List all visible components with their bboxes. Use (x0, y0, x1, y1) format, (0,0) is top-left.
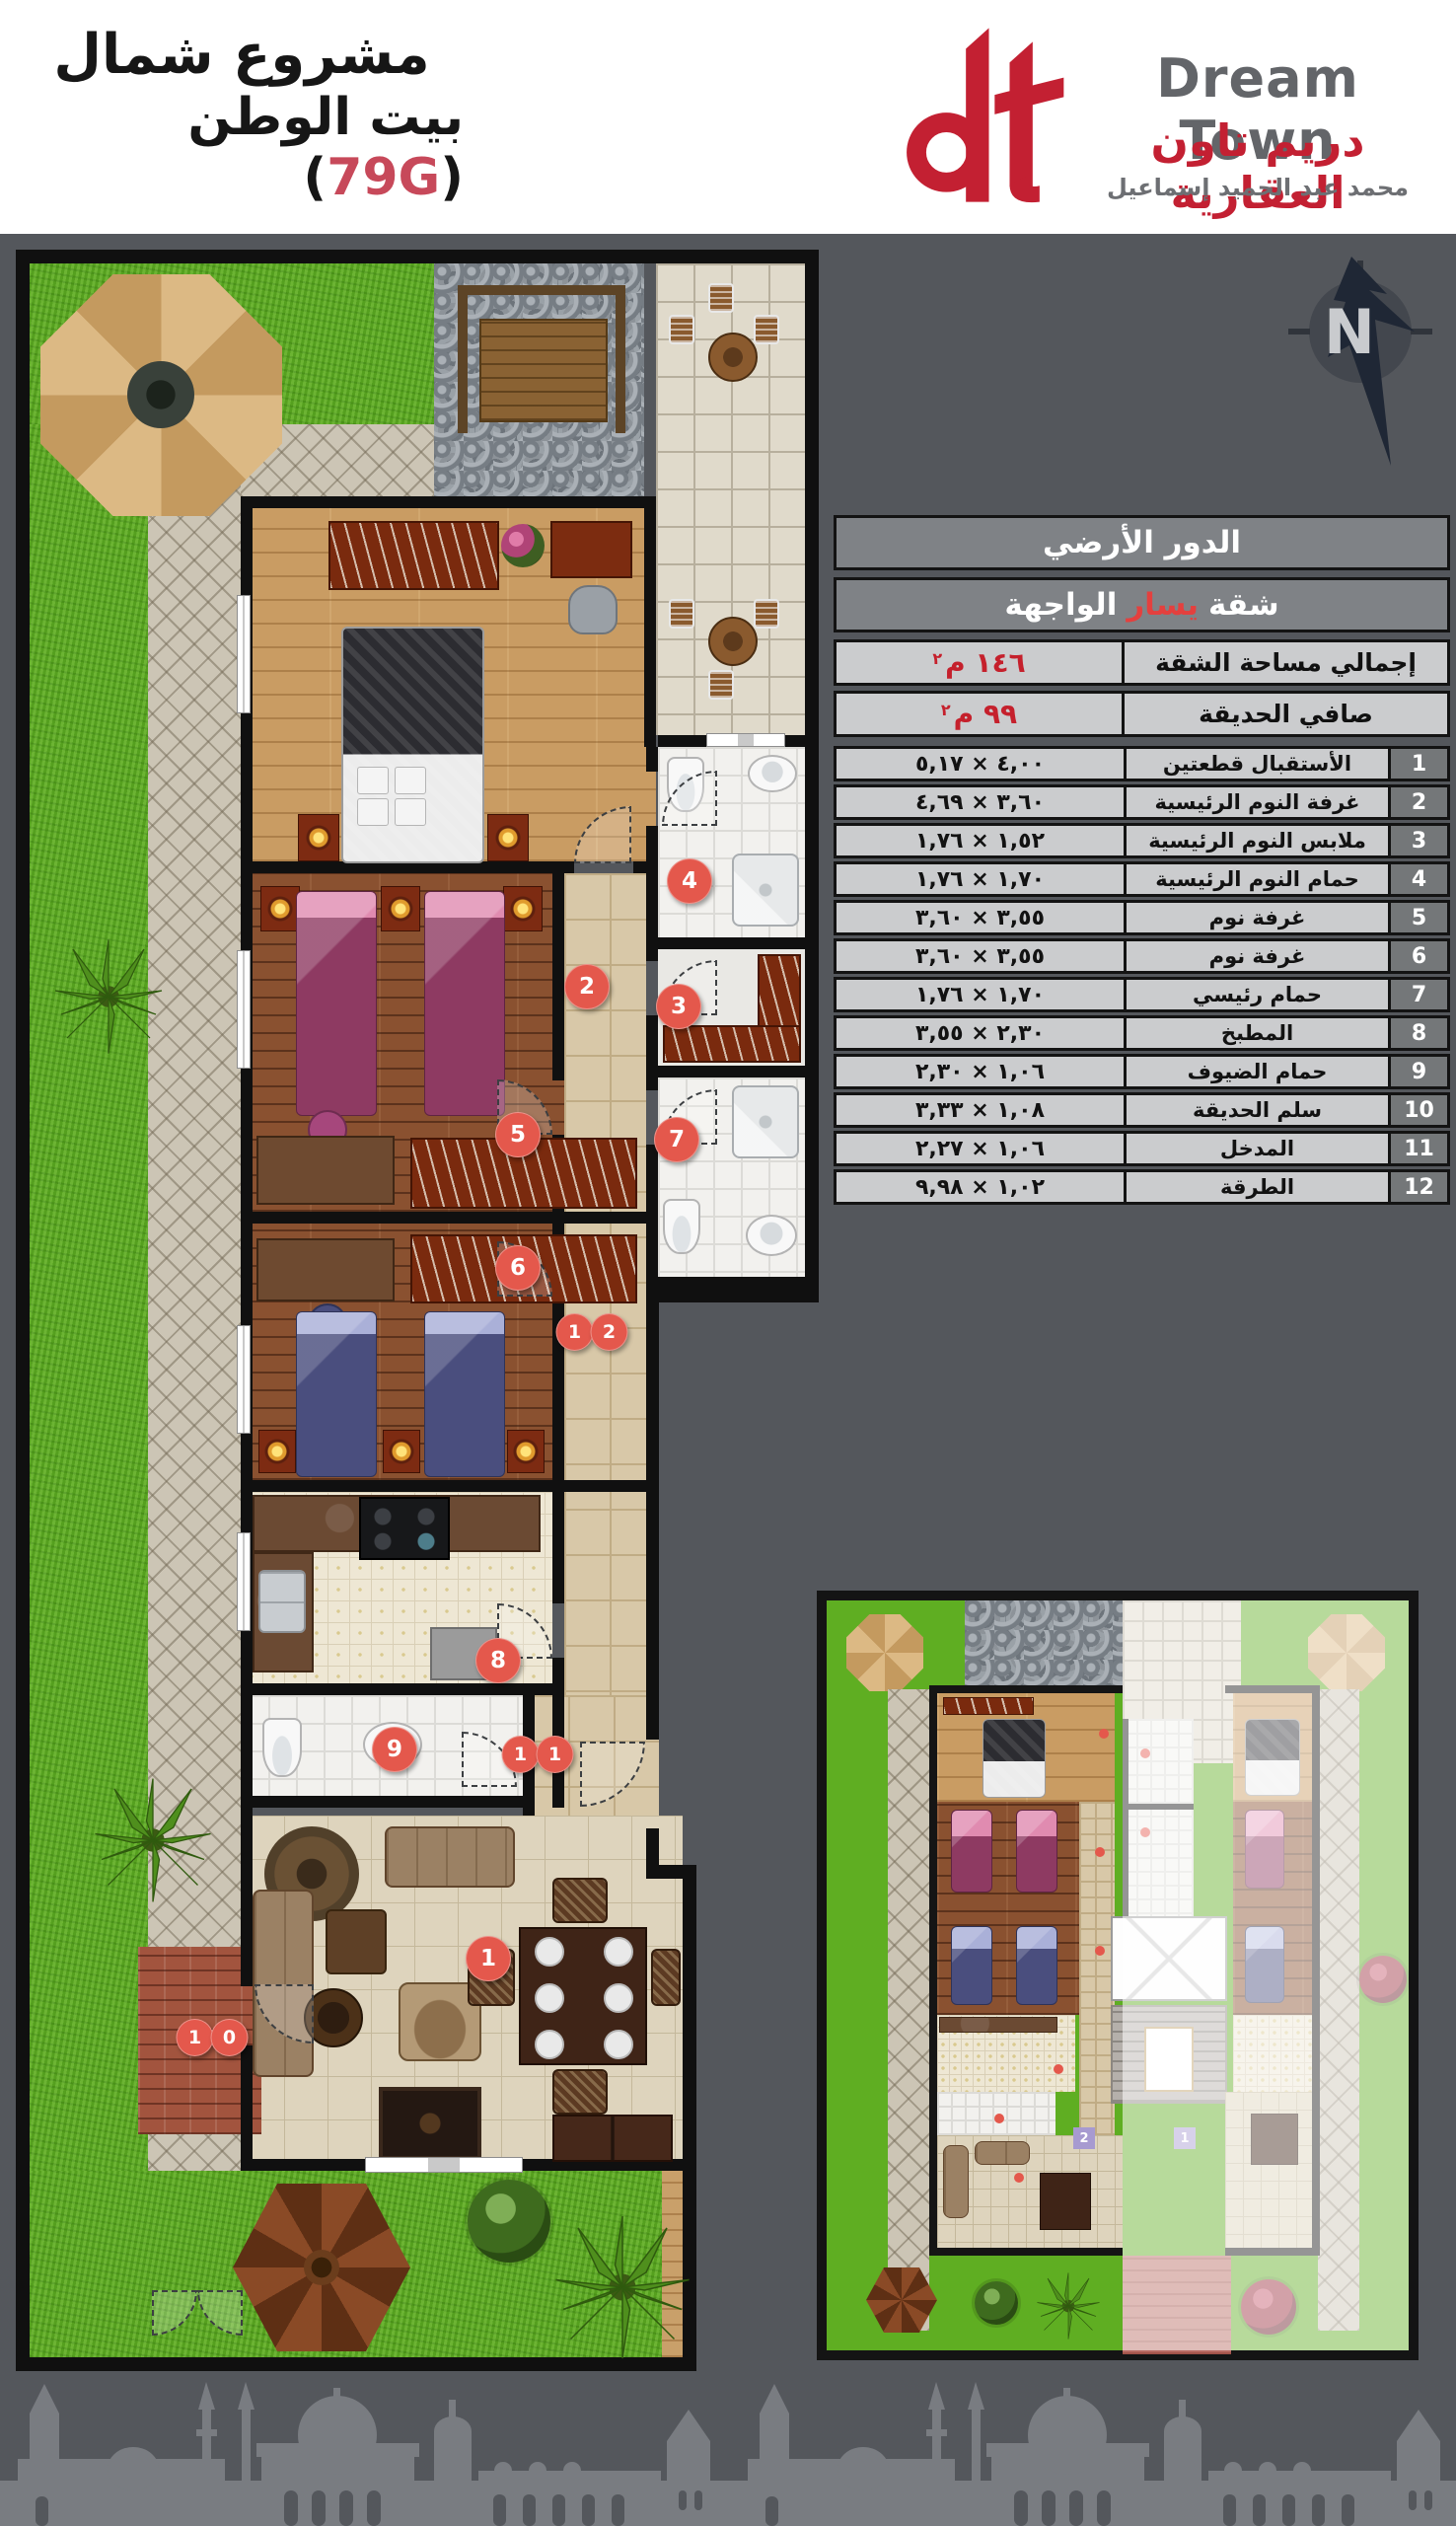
kp-wall (929, 1685, 937, 2256)
north-compass: N (1267, 255, 1454, 477)
kp-counter (939, 2017, 1057, 2033)
kp-sofa (943, 2145, 969, 2218)
total-area-value: ١٤٦ م٢ (837, 642, 1122, 683)
title-paren-open: ( (303, 148, 327, 207)
poster-page: مشروع شمال بيت الوطن (79G) Dream Town در… (0, 0, 1456, 2526)
room-row-2: 2غرفة النوم الرئيسية٣,٦٠ × ٤,٦٩ (834, 784, 1450, 820)
plan-marker-12: 12 (556, 1313, 628, 1351)
marker-digit: 7 (654, 1117, 699, 1162)
project-title: مشروع شمال بيت الوطن (79G) (20, 22, 464, 209)
room-label: غرفة النوم الرئيسية (1124, 787, 1388, 817)
marker-digit: 8 (475, 1638, 521, 1683)
room-number: 7 (1388, 980, 1447, 1009)
plan-marker-5: 5 (495, 1112, 541, 1157)
room-row-8: 8المطبخ٢,٣٠ × ٣,٥٥ (834, 1015, 1450, 1051)
unit-code: 79G (327, 148, 440, 207)
room-dimensions: ١,٧٠ × ١,٧٦ (837, 864, 1124, 894)
room-label: غرفة نوم (1124, 903, 1388, 932)
company-logo: Dream Town دريم تاون العقارية محمد عبد ا… (903, 8, 1450, 227)
room-label: ملابس النوم الرئيسية (1124, 826, 1388, 855)
garden-area-label: صافي الحديقة (1122, 694, 1447, 734)
marker-digit: 3 (656, 984, 701, 1029)
room-label: حمام النوم الرئيسية (1124, 864, 1388, 894)
kp-bed (951, 1810, 992, 1893)
header: مشروع شمال بيت الوطن (79G) Dream Town در… (0, 0, 1456, 234)
logo-name-ar: دريم تاون العقارية (1070, 114, 1445, 219)
area-value-sup: ٢ (932, 649, 942, 668)
room-number: 10 (1388, 1095, 1447, 1125)
room-label: حمام رئيسي (1124, 980, 1388, 1009)
room-label: الطرقة (1124, 1172, 1388, 1202)
marker-digit: 9 (372, 1727, 417, 1772)
room-row-4: 4حمام النوم الرئيسية١,٧٠ × ١,٧٦ (834, 861, 1450, 897)
dt-monogram-icon (903, 14, 1075, 216)
project-title-line2: بيت الوطن (79G) (20, 88, 464, 209)
room-number: 5 (1388, 903, 1447, 932)
room-row-6: 6غرفة نوم٣,٥٥ × ٣,٦٠ (834, 938, 1450, 974)
garden-area-row: صافي الحديقة ٩٩ م٢ (834, 691, 1450, 737)
room-marker-layer: 123456789101112 (16, 250, 819, 2371)
room-dimensions: ١,٠٢ × ٩,٩٨ (837, 1172, 1124, 1202)
room-number: 4 (1388, 864, 1447, 894)
title-line2-text: بيت الوطن (187, 88, 464, 147)
kp-marker-dot (1095, 1847, 1105, 1857)
total-area-label: إجمالي مساحة الشقة (1122, 642, 1447, 683)
kp-bed (951, 1926, 992, 2005)
area-value-text: ١٤٦ م (945, 646, 1026, 679)
room-number: 11 (1388, 1134, 1447, 1163)
kp-path-left (888, 1689, 929, 2331)
plan-marker-4: 4 (667, 858, 712, 904)
room-dimensions: ١,٧٠ × ١,٧٦ (837, 980, 1124, 1009)
garden-area-value: ٩٩ م٢ (837, 694, 1122, 734)
plan-marker-9: 9 (372, 1727, 417, 1772)
area-value-text: ٩٩ م (954, 698, 1017, 730)
svg-text:N: N (1324, 296, 1375, 368)
marker-digit: 4 (667, 858, 712, 904)
marker-digit: 1 (502, 1736, 540, 1773)
room-row-10: 10سلم الحديقة١,٠٨ × ٣,٣٣ (834, 1092, 1450, 1128)
plan-marker-7: 7 (654, 1117, 699, 1162)
plan-marker-6: 6 (495, 1245, 541, 1291)
kp-marker-dot (1095, 1946, 1105, 1956)
room-row-3: 3ملابس النوم الرئيسية١,٥٢ × ١,٧٦ (834, 823, 1450, 858)
kp-marker-dot (994, 2114, 1004, 2123)
room-row-11: 11المدخل١,٠٦ × ٢,٢٧ (834, 1131, 1450, 1166)
kp-marker-dot (1014, 2173, 1024, 2183)
room-label: سلم الحديقة (1124, 1095, 1388, 1125)
marker-digit: 2 (591, 1313, 628, 1351)
room-dimensions: ٢,٣٠ × ٣,٥٥ (837, 1018, 1124, 1048)
kp-faded-overlay (1123, 1600, 1409, 2350)
total-area-row: إجمالي مساحة الشقة ١٤٦ م٢ (834, 639, 1450, 686)
unit-title-row: شقة يسار الواجهة (834, 577, 1450, 632)
plan-marker-3: 3 (656, 984, 701, 1029)
room-row-12: 12الطرقة١,٠٢ × ٩,٩٨ (834, 1169, 1450, 1205)
floor-title: الدور الأرضي (1043, 525, 1241, 560)
kp-wardrobe (943, 1697, 1034, 1715)
marker-digit: 5 (495, 1112, 541, 1157)
kp-sofa (975, 2141, 1030, 2165)
marker-digit: 0 (211, 2019, 249, 2056)
kp-palm (1034, 2271, 1103, 2340)
kp-unit-tag-2: 2 (1073, 2127, 1095, 2149)
kp-dining-table (1040, 2173, 1091, 2230)
marker-digit: 1 (556, 1313, 594, 1351)
plan-marker-8: 8 (475, 1638, 521, 1683)
room-label: المطبخ (1124, 1018, 1388, 1048)
key-plan: 2 1 (817, 1591, 1419, 2360)
unit-highlight: يسار (1127, 587, 1199, 623)
room-number: 3 (1388, 826, 1447, 855)
logo-tagline: محمد عبد الحميد إسماعيل (1070, 174, 1445, 201)
room-row-1: 1الأستقبال قطعتين٤,٠٠ × ٥,١٧ (834, 746, 1450, 781)
room-dimensions: ٣,٥٥ × ٣,٦٠ (837, 941, 1124, 971)
room-number: 12 (1388, 1172, 1447, 1202)
room-dimensions: ١,٠٦ × ٢,٢٧ (837, 1134, 1124, 1163)
room-label: الأستقبال قطعتين (1124, 749, 1388, 779)
plan-marker-10: 10 (177, 2019, 249, 2056)
marker-digit: 2 (564, 964, 610, 1009)
plan-marker-1: 1 (466, 1936, 511, 1981)
room-number: 6 (1388, 941, 1447, 971)
plan-marker-11: 11 (502, 1736, 574, 1773)
room-row-5: 5غرفة نوم٣,٥٥ × ٣,٦٠ (834, 900, 1450, 935)
project-title-line1: مشروع شمال (53, 23, 429, 88)
marker-digit: 1 (466, 1936, 511, 1981)
room-number: 9 (1388, 1057, 1447, 1086)
main-floor-plan: 123456789101112 (16, 250, 819, 2371)
kp-bed (1016, 1926, 1057, 2005)
room-dimensions: ٤,٠٠ × ٥,١٧ (837, 749, 1124, 779)
north-arrow-icon: N (1267, 255, 1454, 477)
room-row-9: 9حمام الضيوف١,٠٦ × ٢,٣٠ (834, 1054, 1450, 1089)
room-dimensions: ٣,٦٠ × ٤,٦٩ (837, 787, 1124, 817)
kp-bush (975, 2281, 1018, 2325)
title-code-group: (79G) (303, 148, 464, 207)
unit-pre: شقة (1208, 587, 1279, 623)
room-rows: 1الأستقبال قطعتين٤,٠٠ × ٥,١٧2غرفة النوم … (834, 746, 1450, 1205)
room-number: 2 (1388, 787, 1447, 817)
room-dimensions: ١,٠٦ × ٢,٣٠ (837, 1057, 1124, 1086)
unit-post: الواجهة (1004, 587, 1117, 623)
room-label: غرفة نوم (1124, 941, 1388, 971)
room-row-7: 7حمام رئيسي١,٧٠ × ١,٧٦ (834, 977, 1450, 1012)
title-paren-close: ) (440, 148, 464, 207)
room-number: 8 (1388, 1018, 1447, 1048)
kp-marker-dot (1054, 2064, 1063, 2074)
room-dimensions: ١,٥٢ × ١,٧٦ (837, 826, 1124, 855)
room-number: 1 (1388, 749, 1447, 779)
kp-umbrella (846, 1614, 923, 1691)
marker-digit: 1 (537, 1736, 574, 1773)
specs-table: الدور الأرضي شقة يسار الواجهة إجمالي مسا… (834, 515, 1450, 1208)
marker-digit: 6 (495, 1245, 541, 1291)
city-skyline (0, 2372, 1456, 2526)
area-value-sup: ٢ (941, 701, 951, 719)
kp-marker-dot (1099, 1729, 1109, 1739)
kp-wall (929, 1685, 1123, 1693)
marker-digit: 1 (177, 2019, 214, 2056)
kp-bed (1016, 1810, 1057, 1893)
plan-marker-2: 2 (564, 964, 610, 1009)
room-label: حمام الضيوف (1124, 1057, 1388, 1086)
kp-bed (983, 1719, 1046, 1798)
room-dimensions: ٣,٥٥ × ٣,٦٠ (837, 903, 1124, 932)
kp-wall (929, 2248, 1123, 2256)
kp-stone-patio (965, 1600, 1123, 1689)
floor-title-row: الدور الأرضي (834, 515, 1450, 570)
room-label: المدخل (1124, 1134, 1388, 1163)
room-dimensions: ١,٠٨ × ٣,٣٣ (837, 1095, 1124, 1125)
